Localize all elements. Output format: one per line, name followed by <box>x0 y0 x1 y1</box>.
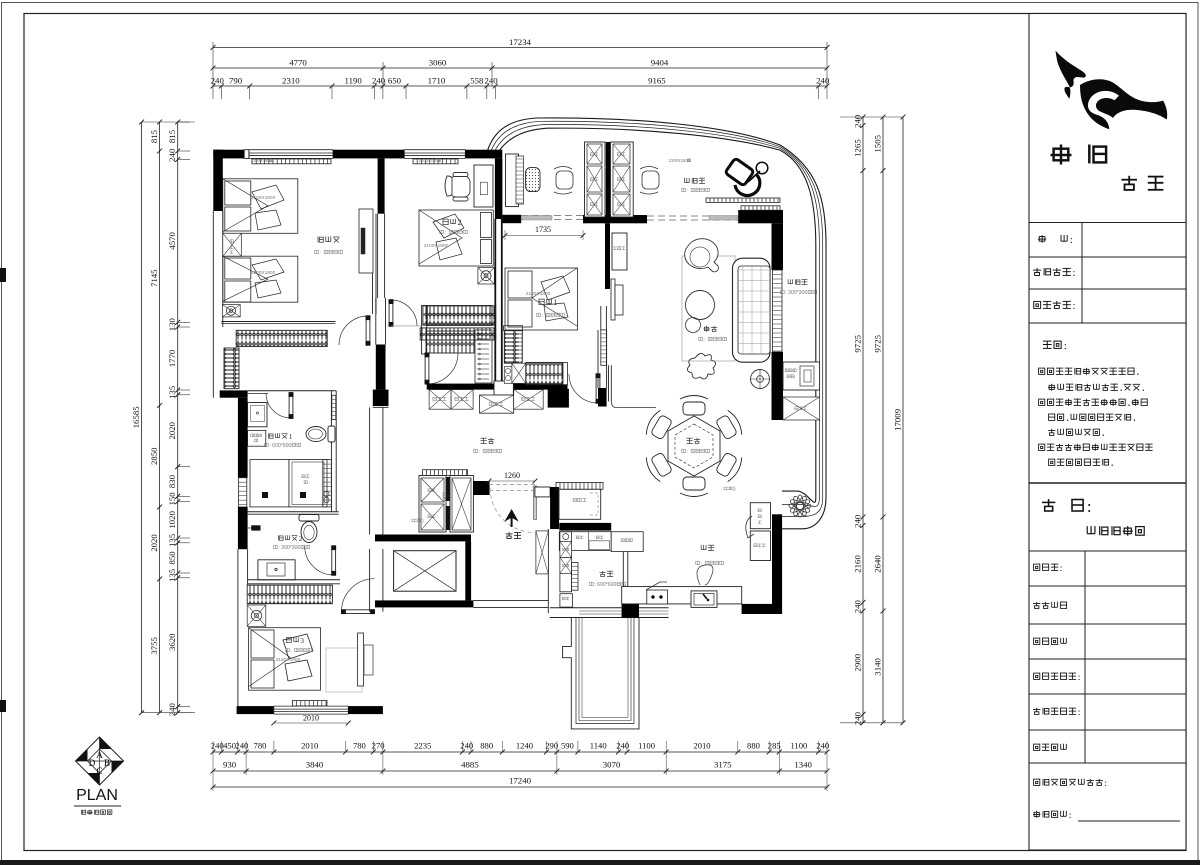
svg-text:2640: 2640 <box>873 555 883 573</box>
svg-text::: : <box>686 188 687 194</box>
svg-text:2020: 2020 <box>167 421 177 439</box>
svg-text:1505: 1505 <box>873 134 883 152</box>
svg-text:4770: 4770 <box>289 58 307 68</box>
svg-text:1140: 1140 <box>590 741 607 751</box>
svg-text:1100: 1100 <box>790 741 807 751</box>
svg-text:9725: 9725 <box>853 334 863 352</box>
svg-text:9404: 9404 <box>651 58 669 68</box>
svg-text:270: 270 <box>372 741 385 751</box>
svg-text::: : <box>1060 564 1063 574</box>
svg-text:650: 650 <box>388 76 402 86</box>
svg-text:2150X1800: 2150X1800 <box>276 657 301 663</box>
svg-text:2: 2 <box>458 218 462 227</box>
svg-text:PLAN: PLAN <box>76 787 118 804</box>
svg-text:240: 240 <box>372 76 386 86</box>
svg-text:17009: 17009 <box>893 408 903 431</box>
svg-text:850: 850 <box>167 551 177 565</box>
svg-text:2100X1800: 2100X1800 <box>526 291 551 297</box>
svg-text:1: 1 <box>289 432 293 441</box>
svg-text:285: 285 <box>768 741 781 751</box>
svg-text:2850: 2850 <box>149 447 159 465</box>
svg-text:2900: 2900 <box>853 653 863 671</box>
svg-text:1240: 1240 <box>516 741 533 751</box>
svg-text:3070: 3070 <box>603 760 621 770</box>
svg-text:240: 240 <box>460 741 473 751</box>
svg-text:135: 135 <box>167 385 177 399</box>
svg-text:815: 815 <box>149 129 159 143</box>
svg-text:1710: 1710 <box>428 76 446 86</box>
svg-text:2010: 2010 <box>693 741 710 751</box>
svg-text::: : <box>686 449 687 455</box>
svg-text:150: 150 <box>167 492 177 506</box>
svg-text:1770: 1770 <box>167 349 177 367</box>
svg-text:3840: 3840 <box>306 760 324 770</box>
svg-text::: : <box>444 230 445 236</box>
svg-text:1265: 1265 <box>853 139 863 157</box>
svg-text:240: 240 <box>484 76 498 86</box>
svg-text:1340: 1340 <box>794 760 812 770</box>
svg-text:1020: 1020 <box>167 510 177 528</box>
svg-text:780: 780 <box>353 741 366 751</box>
svg-text:2235: 2235 <box>414 741 431 751</box>
svg-text:9165: 9165 <box>648 76 666 86</box>
svg-text:240: 240 <box>167 703 177 717</box>
svg-text:2020: 2020 <box>149 534 159 552</box>
svg-text:3140: 3140 <box>873 658 883 676</box>
svg-text:7145: 7145 <box>149 269 159 287</box>
svg-text::: : <box>1087 497 1092 516</box>
svg-text:4885: 4885 <box>461 760 479 770</box>
svg-text:3620: 3620 <box>167 633 177 651</box>
svg-text::: : <box>541 313 542 319</box>
svg-text:3175: 3175 <box>714 760 732 770</box>
svg-text:240: 240 <box>853 600 863 614</box>
svg-text::: : <box>1070 235 1073 246</box>
svg-text:930: 930 <box>223 760 237 770</box>
svg-text:1: 1 <box>554 298 558 307</box>
svg-text::: : <box>1069 811 1072 821</box>
svg-text:3060: 3060 <box>429 58 447 68</box>
svg-text::: : <box>1078 708 1081 718</box>
svg-text:780: 780 <box>254 741 267 751</box>
svg-text:240: 240 <box>816 741 829 751</box>
svg-text::: : <box>1078 673 1081 683</box>
svg-text:2310: 2310 <box>282 76 300 86</box>
svg-text::: : <box>319 250 320 256</box>
svg-text:815: 815 <box>167 129 177 143</box>
svg-text:240: 240 <box>235 741 248 751</box>
svg-text:240: 240 <box>211 741 224 751</box>
svg-text:2010: 2010 <box>303 714 319 723</box>
svg-text:830: 830 <box>167 474 177 488</box>
svg-text:240: 240 <box>616 741 629 751</box>
svg-text:880: 880 <box>480 741 493 751</box>
svg-text::: : <box>700 561 701 567</box>
svg-text:4570: 4570 <box>167 232 177 250</box>
svg-text:240: 240 <box>853 114 863 128</box>
svg-text::: : <box>703 337 704 343</box>
svg-text::: : <box>1104 779 1107 789</box>
svg-text:2100X1800: 2100X1800 <box>251 195 276 201</box>
svg-text:17240: 17240 <box>509 776 532 786</box>
svg-text:B: B <box>104 758 110 768</box>
svg-text:: 300*300: : 300*300 <box>278 545 300 551</box>
svg-text::: : <box>478 449 479 455</box>
svg-text:240: 240 <box>816 76 830 86</box>
svg-text:16585: 16585 <box>131 406 141 429</box>
svg-text:1735: 1735 <box>535 225 551 234</box>
svg-text:135: 135 <box>167 533 177 547</box>
svg-text:3755: 3755 <box>149 636 159 654</box>
svg-text::: : <box>1073 268 1076 279</box>
svg-text:: 300*300: : 300*300 <box>785 290 807 296</box>
svg-text:A: A <box>96 750 103 760</box>
svg-text:1100: 1100 <box>638 741 655 751</box>
svg-text:1470: 1470 <box>443 492 448 503</box>
svg-text:2100X1800: 2100X1800 <box>251 270 276 276</box>
svg-text:2160: 2160 <box>853 555 863 573</box>
svg-text:1190: 1190 <box>345 76 363 86</box>
svg-text:2100X1800: 2100X1800 <box>424 243 449 249</box>
svg-text::: : <box>290 649 291 654</box>
svg-text:880: 880 <box>747 741 760 751</box>
svg-text:: 600*600: : 600*600 <box>594 582 616 588</box>
svg-text:558: 558 <box>470 76 484 86</box>
svg-text:790: 790 <box>229 76 243 86</box>
svg-text:240: 240 <box>167 148 177 162</box>
svg-text:240: 240 <box>853 514 863 528</box>
svg-text:: 600*600: : 600*600 <box>269 443 291 449</box>
svg-text:135: 135 <box>167 568 177 582</box>
svg-text:3: 3 <box>300 636 304 645</box>
svg-text:D: D <box>89 758 96 768</box>
svg-text:450: 450 <box>223 741 236 751</box>
svg-text::: : <box>1073 301 1076 312</box>
svg-text:C: C <box>96 766 102 776</box>
svg-text:2: 2 <box>299 534 303 543</box>
svg-text:17234: 17234 <box>509 37 532 47</box>
svg-text::: : <box>1064 340 1067 352</box>
svg-text:1260: 1260 <box>504 471 520 480</box>
svg-text:130: 130 <box>167 317 177 331</box>
svg-text:590: 590 <box>561 741 574 751</box>
svg-text:9725: 9725 <box>873 334 883 352</box>
svg-text:2010: 2010 <box>301 741 318 751</box>
svg-text:290: 290 <box>545 741 558 751</box>
